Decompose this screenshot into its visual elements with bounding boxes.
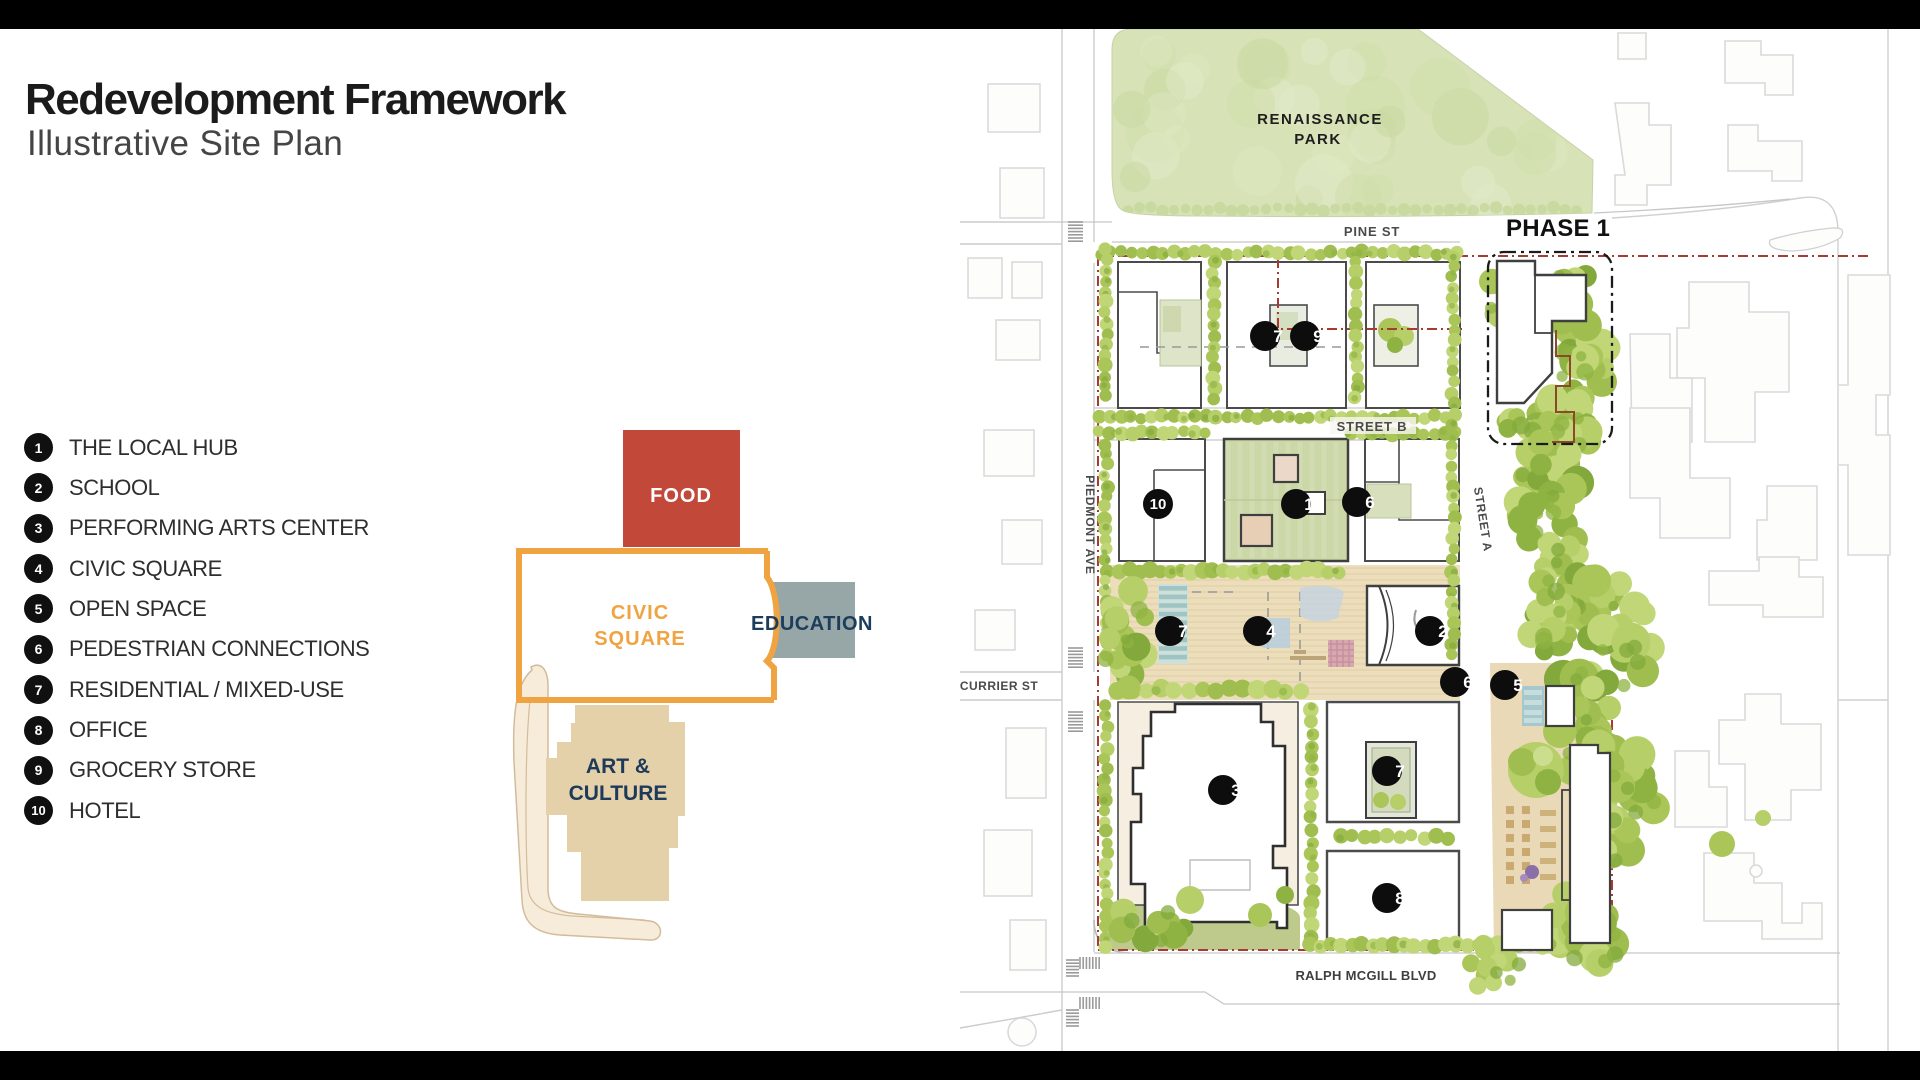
svg-text:STREET B: STREET B (1337, 419, 1408, 434)
svg-text:SQUARE: SQUARE (594, 628, 686, 650)
svg-text:9: 9 (1313, 327, 1322, 346)
svg-text:7: 7 (1178, 622, 1187, 641)
svg-text:PARK: PARK (1294, 131, 1341, 148)
svg-text:RALPH MCGILL BLVD: RALPH MCGILL BLVD (1295, 968, 1436, 983)
svg-text:PINE ST: PINE ST (1344, 224, 1400, 239)
svg-text:PIEDMONT AVE: PIEDMONT AVE (1083, 475, 1097, 575)
svg-text:10: 10 (1150, 496, 1167, 513)
svg-text:8: 8 (1395, 889, 1404, 908)
svg-text:STREET A: STREET A (1471, 486, 1495, 553)
svg-text:6: 6 (1463, 673, 1472, 692)
svg-text:3: 3 (1231, 781, 1240, 800)
svg-text:4: 4 (1266, 622, 1276, 641)
svg-text:CURRIER ST: CURRIER ST (960, 679, 1039, 693)
svg-text:7: 7 (1273, 327, 1282, 346)
svg-text:RENAISSANCE: RENAISSANCE (1257, 111, 1383, 128)
svg-text:1: 1 (1304, 495, 1313, 514)
svg-text:FOOD: FOOD (650, 485, 712, 507)
svg-text:CULTURE: CULTURE (569, 782, 668, 805)
svg-text:CIVIC: CIVIC (611, 602, 669, 624)
svg-text:PHASE 1: PHASE 1 (1506, 215, 1610, 242)
svg-text:6: 6 (1365, 493, 1374, 512)
svg-text:ART &: ART & (586, 755, 650, 778)
svg-text:7: 7 (1395, 762, 1404, 781)
svg-text:EDUCATION: EDUCATION (751, 613, 873, 635)
svg-text:2: 2 (1438, 622, 1447, 641)
svg-text:5: 5 (1513, 676, 1522, 695)
